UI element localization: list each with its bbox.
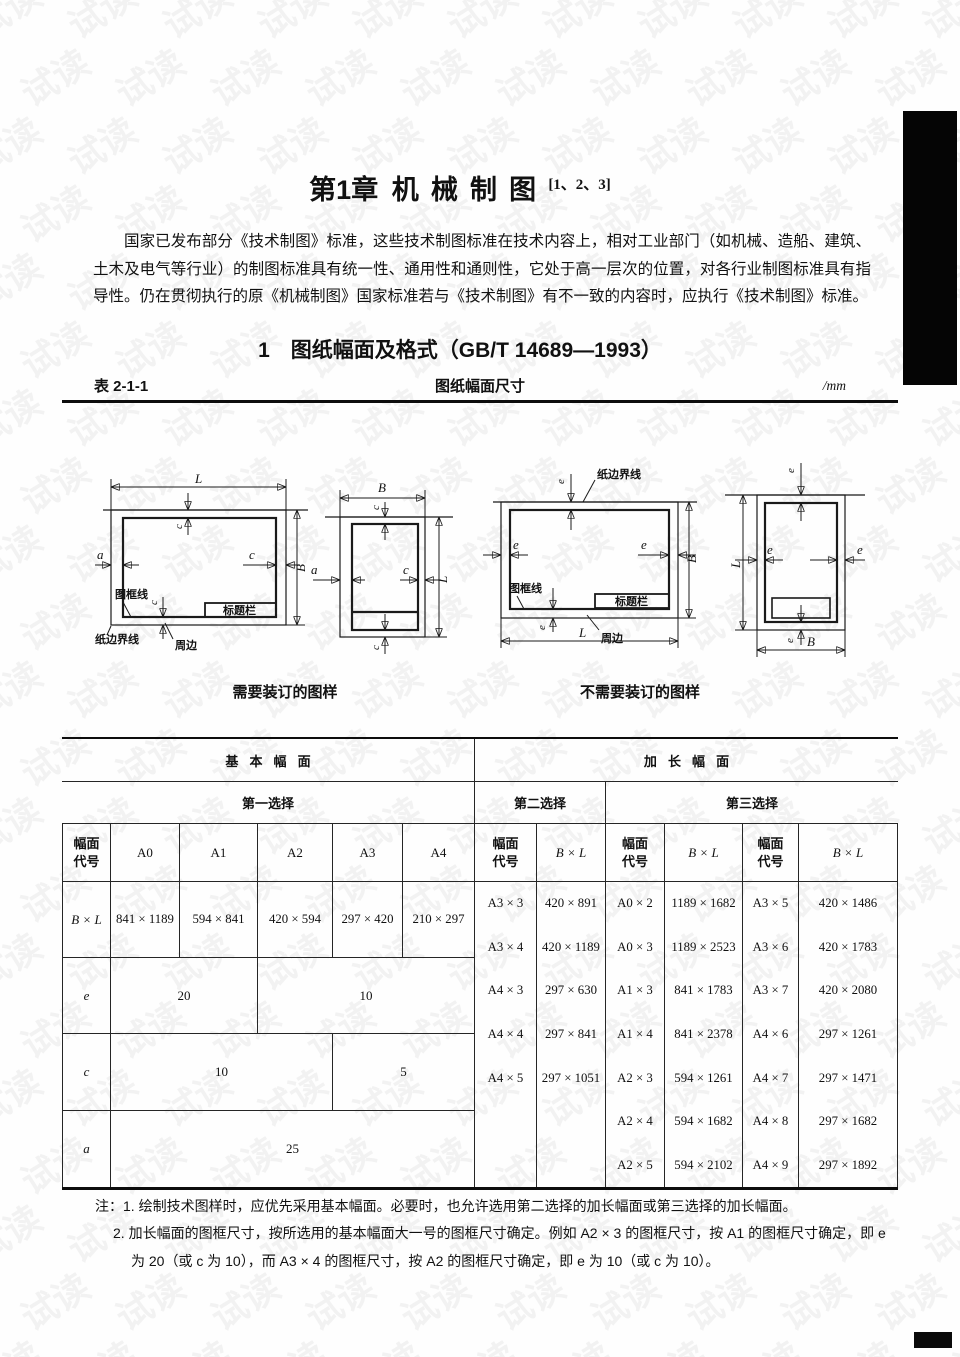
header-format-code-4: 幅面代号 — [743, 824, 799, 882]
size-value: 594 × 841 — [180, 882, 258, 958]
chapter-name: 机械制图 — [392, 175, 549, 205]
size-value: 594 × 1261 — [665, 1056, 742, 1100]
row-label-a: a — [62, 1111, 111, 1187]
intro-paragraph: 国家已发布部分《技术制图》标准，这些技术制图标准在技术内容上，相对工业部门（如机… — [93, 228, 871, 311]
header-format-code-3: 幅面代号 — [606, 824, 665, 882]
size-value: A1 × 3 — [606, 969, 664, 1013]
dim-label-L: L — [728, 561, 743, 569]
dim-label-c-bottom: c — [370, 645, 382, 650]
header-bxl-4: B × L — [799, 824, 898, 882]
scanned-document-page: 试读试读试读试读试读试读试读试读试读试读试读试读试读试读试读试读试读试读试读试读… — [0, 0, 960, 1357]
dim-label-e-bottom: e — [536, 625, 548, 630]
size-value: 297 × 1682 — [799, 1100, 897, 1144]
size-value: 841 × 1783 — [665, 969, 742, 1013]
size-value: A2 × 3 — [606, 1056, 664, 1100]
size-value — [537, 1100, 605, 1144]
header-size-a1: A1 — [180, 824, 258, 882]
header-format-code-text: 幅面代号 — [620, 835, 650, 870]
size-value: A4 × 8 — [743, 1100, 798, 1144]
dim-label-e-left: e — [767, 542, 773, 557]
extended-column-code-3b: A3 × 5A3 × 6A3 × 7A4 × 6A4 × 7A4 × 8A4 ×… — [743, 882, 799, 1187]
title-block-label: 标题栏 — [614, 594, 648, 608]
size-value: 297 × 630 — [537, 969, 605, 1013]
size-value: 420 × 1783 — [799, 926, 897, 970]
size-value: 841 × 1189 — [111, 882, 180, 958]
dim-label-B: B — [807, 634, 815, 649]
figure-no-binding-landscape: e 纸边界线 e e B 图框线 标题栏 周边 e L — [483, 460, 718, 655]
header-size-a3: A3 — [333, 824, 403, 882]
figure-binding-landscape: L c a c B c 图框线 标题栏 纸边界线 周边 — [93, 465, 323, 655]
figure-no-binding-portrait: e L e e e B — [705, 455, 885, 665]
size-value: 297 × 420 — [333, 882, 403, 958]
table-unit-label: /mm — [823, 378, 898, 394]
header-bxl-3: B × L — [665, 824, 743, 882]
paper-and-frame-outline — [103, 510, 308, 625]
header-format-code-text: 幅面代号 — [72, 835, 102, 870]
paper-and-frame-outline — [725, 495, 865, 630]
row-label-c: c — [62, 1034, 111, 1110]
caption-no-binding: 不需要装订的图样 — [530, 681, 750, 702]
dim-label-e-top: e — [555, 479, 567, 484]
margin-label: 周边 — [175, 638, 198, 652]
size-value: 420 × 891 — [537, 882, 605, 926]
header-format-code: 幅面代号 — [62, 824, 111, 882]
size-value: A0 × 3 — [606, 926, 664, 970]
title-block-label: 标题栏 — [222, 603, 256, 617]
header-extended-formats: 加长幅面 — [475, 739, 898, 782]
size-value: 297 × 1051 — [537, 1056, 605, 1100]
size-value: A3 × 4 — [475, 926, 536, 970]
size-value: 594 × 2102 — [665, 1143, 742, 1187]
dim-label-e-right: e — [641, 537, 647, 552]
extended-column-code-3: A0 × 2A0 × 3A1 × 3A1 × 4A2 × 3A2 × 4A2 ×… — [606, 882, 665, 1187]
header-basic-formats: 基本幅面 — [62, 739, 475, 782]
note-text-1: 1. 绘制技术图样时，应优先采用基本幅面。必要时，也允许选用第二选择的加长幅面或… — [123, 1198, 797, 1214]
size-value: A4 × 4 — [475, 1013, 536, 1057]
chapter-number: 第1章 — [309, 175, 378, 205]
row-label-e: e — [62, 958, 111, 1034]
note-item-1: 注：1. 绘制技术图样时，应优先采用基本幅面。必要时，也允许选用第二选择的加长幅… — [95, 1193, 887, 1220]
frame-line-label: 图框线 — [115, 587, 148, 601]
note-prefix: 注： — [95, 1198, 123, 1214]
size-value: 841 × 2378 — [665, 1013, 742, 1057]
size-value: A3 × 7 — [743, 969, 798, 1013]
dim-label-B: B — [378, 480, 386, 495]
margin-value-e: 20 — [111, 958, 258, 1034]
table-number-label: 表 2-1-1 — [62, 375, 148, 396]
dim-label-c-top: c — [173, 524, 185, 529]
size-value: 594 × 1682 — [665, 1100, 742, 1144]
dim-label-c-top: c — [370, 505, 382, 510]
dim-label-a: a — [311, 562, 318, 577]
caption-binding-required: 需要装订的图样 — [180, 681, 390, 702]
frame-line-label: 图框线 — [509, 581, 542, 595]
section-heading: 1 图纸幅面及格式（GB/T 14689—1993） — [0, 334, 920, 364]
header-first-choice: 第一选择 — [62, 782, 475, 824]
dim-label-c-bottom: c — [148, 600, 160, 605]
size-value: A3 × 6 — [743, 926, 798, 970]
header-size-a2: A2 — [258, 824, 333, 882]
size-value: 1189 × 2523 — [665, 926, 742, 970]
dim-label-e-bottom: e — [784, 638, 796, 643]
table-top-rule — [62, 400, 898, 403]
dim-label-c: c — [249, 547, 255, 562]
paper-and-frame-outline — [493, 502, 697, 618]
size-value: A4 × 5 — [475, 1056, 536, 1100]
size-value: 420 × 1486 — [799, 882, 897, 926]
size-value — [475, 1100, 536, 1144]
paper-and-frame-outline — [325, 517, 453, 637]
dim-label-L: L — [435, 576, 450, 584]
dimension-lines — [483, 474, 696, 648]
dim-label-a: a — [97, 547, 104, 562]
margin-value-a: 25 — [111, 1111, 475, 1187]
chapter-reference-superscript: [1、2、3] — [548, 177, 611, 193]
size-value: 297 × 1892 — [799, 1143, 897, 1187]
table-title: 图纸幅面尺寸 — [435, 375, 525, 396]
table-notes: 注：1. 绘制技术图样时，应优先采用基本幅面。必要时，也允许选用第二选择的加长幅… — [95, 1193, 887, 1275]
size-value: A0 × 2 — [606, 882, 664, 926]
page-number-block — [914, 1332, 952, 1348]
extended-column-size-3b: 420 × 1486420 × 1783420 × 2080297 × 1261… — [799, 882, 898, 1187]
size-value: A1 × 4 — [606, 1013, 664, 1057]
header-format-code-text: 幅面代号 — [491, 835, 521, 870]
chapter-title: 第1章机械制图[1、2、3] — [0, 168, 920, 207]
header-size-a4: A4 — [403, 824, 475, 882]
size-value: A2 × 4 — [606, 1100, 664, 1144]
dim-label-c: c — [403, 562, 409, 577]
table-caption-row: 表 2-1-1 图纸幅面尺寸 /mm — [62, 375, 898, 396]
header-format-code-text: 幅面代号 — [756, 835, 786, 870]
figure-binding-portrait: B c a c L c — [305, 462, 465, 662]
note-item-2: 2. 加长幅面的图框尺寸，按所选用的基本幅面大一号的图框尺寸确定。例如 A2 ×… — [95, 1220, 887, 1275]
row-label-bxl: B × L — [62, 882, 111, 958]
margin-value-c: 5 — [333, 1034, 475, 1110]
paper-edge-label: 纸边界线 — [597, 467, 641, 481]
size-value: A4 × 9 — [743, 1143, 798, 1187]
dim-label-L: L — [194, 471, 202, 486]
page-content: 第1章机械制图[1、2、3] 国家已发布部分《技术制图》标准，这些技术制图标准在… — [0, 0, 960, 1357]
size-value: 297 × 841 — [537, 1013, 605, 1057]
size-value: A3 × 3 — [475, 882, 536, 926]
size-value — [537, 1143, 605, 1187]
dim-label-L: L — [578, 625, 586, 640]
header-bxl-2: B × L — [537, 824, 606, 882]
extended-column-code-2: A3 × 3A3 × 4A4 × 3A4 × 4A4 × 5 — [475, 882, 537, 1187]
dim-label-e-right: e — [857, 542, 863, 557]
header-size-a0: A0 — [111, 824, 180, 882]
size-value: A3 × 5 — [743, 882, 798, 926]
margin-label: 周边 — [601, 631, 624, 645]
size-value: A4 × 6 — [743, 1013, 798, 1057]
header-second-choice: 第二选择 — [475, 782, 606, 824]
dimension-lines — [95, 479, 305, 639]
figures-area: L c a c B c 图框线 标题栏 纸边界线 周边 — [0, 408, 960, 738]
dim-label-e-top: e — [785, 468, 797, 473]
size-value — [475, 1143, 536, 1187]
extended-column-size-2: 420 × 891420 × 1189297 × 630297 × 841297… — [537, 882, 606, 1187]
size-value: 420 × 1189 — [537, 926, 605, 970]
dim-label-e-left: e — [513, 537, 519, 552]
size-value: 297 × 1261 — [799, 1013, 897, 1057]
paper-size-table: 基本幅面 加长幅面 第一选择 第二选择 第三选择 幅面代号 A0 A1 A2 A… — [62, 737, 898, 1190]
size-value: A4 × 7 — [743, 1056, 798, 1100]
margin-value-e: 10 — [258, 958, 475, 1034]
header-third-choice: 第三选择 — [606, 782, 898, 824]
header-format-code-2: 幅面代号 — [475, 824, 537, 882]
size-value: 420 × 2080 — [799, 969, 897, 1013]
dim-label-B: B — [684, 555, 699, 563]
size-value: 297 × 1471 — [799, 1056, 897, 1100]
size-value: 1189 × 1682 — [665, 882, 742, 926]
size-value: 210 × 297 — [403, 882, 475, 958]
size-value: A2 × 5 — [606, 1143, 664, 1187]
extended-column-size-3: 1189 × 16821189 × 2523841 × 1783841 × 23… — [665, 882, 743, 1187]
paper-edge-label: 纸边界线 — [95, 632, 139, 646]
size-value: 420 × 594 — [258, 882, 333, 958]
size-value: A4 × 3 — [475, 969, 536, 1013]
margin-value-c: 10 — [111, 1034, 333, 1110]
